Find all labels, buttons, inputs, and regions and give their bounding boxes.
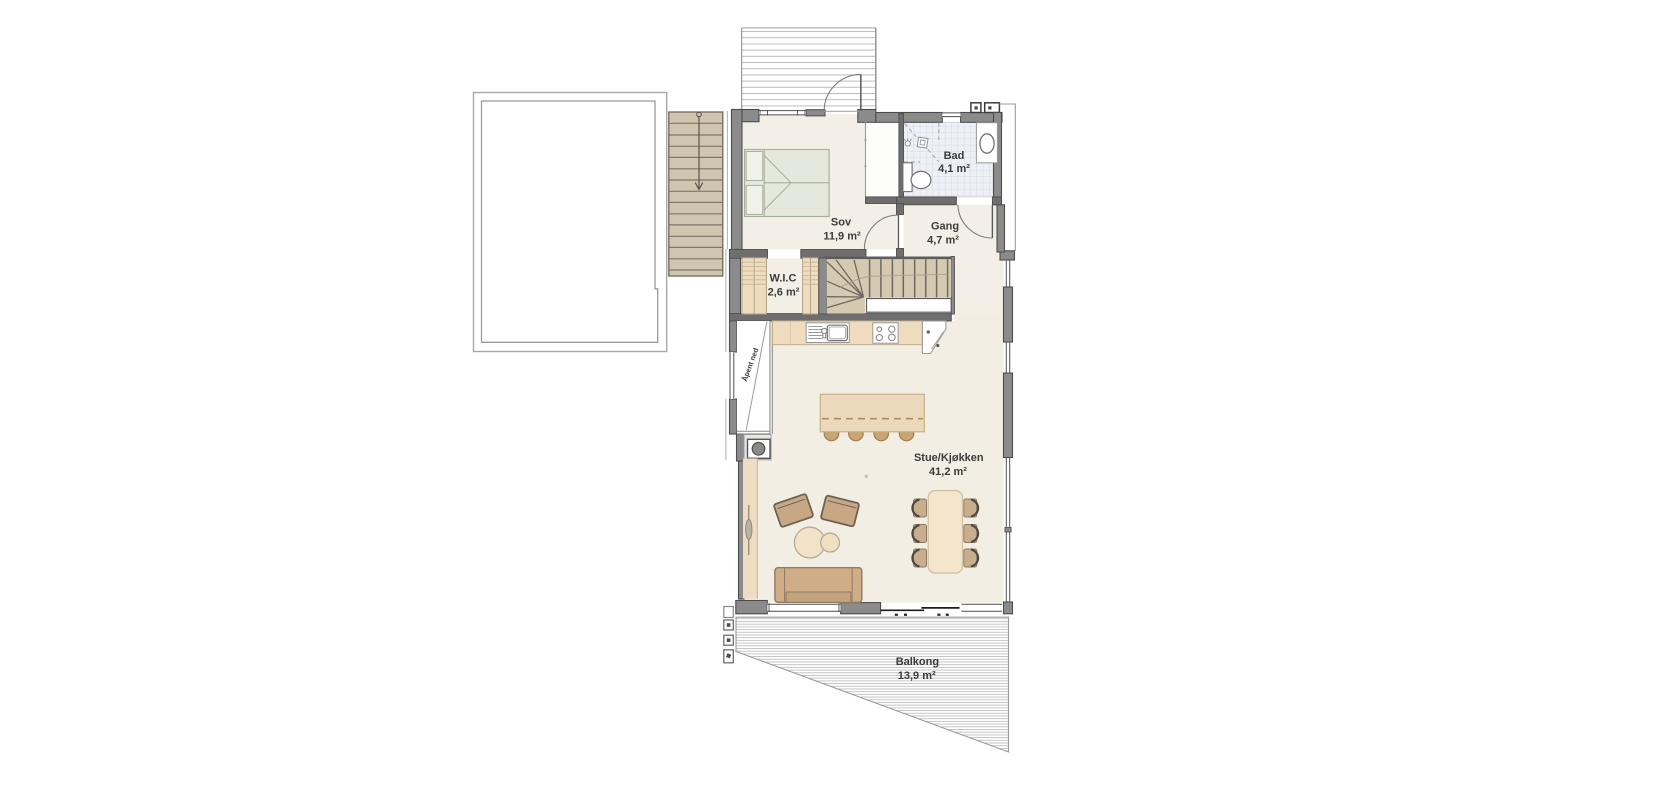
svg-text:4,7 m²: 4,7 m² [927, 235, 959, 247]
svg-text:Stue/Kjøkken: Stue/Kjøkken [914, 452, 984, 464]
svg-text:Sov: Sov [831, 217, 852, 229]
svg-text:11,9 m²: 11,9 m² [823, 231, 861, 243]
svg-text:2,6 m²: 2,6 m² [768, 287, 800, 299]
svg-text:4,1 m²: 4,1 m² [938, 163, 970, 175]
svg-text:Gang: Gang [931, 221, 959, 233]
svg-text:13,9 m²: 13,9 m² [898, 670, 936, 682]
svg-text:Balkong: Balkong [896, 656, 939, 668]
svg-text:41,2 m²: 41,2 m² [929, 466, 967, 478]
svg-text:Bad: Bad [944, 150, 965, 162]
svg-text:W.I.C: W.I.C [770, 273, 797, 285]
